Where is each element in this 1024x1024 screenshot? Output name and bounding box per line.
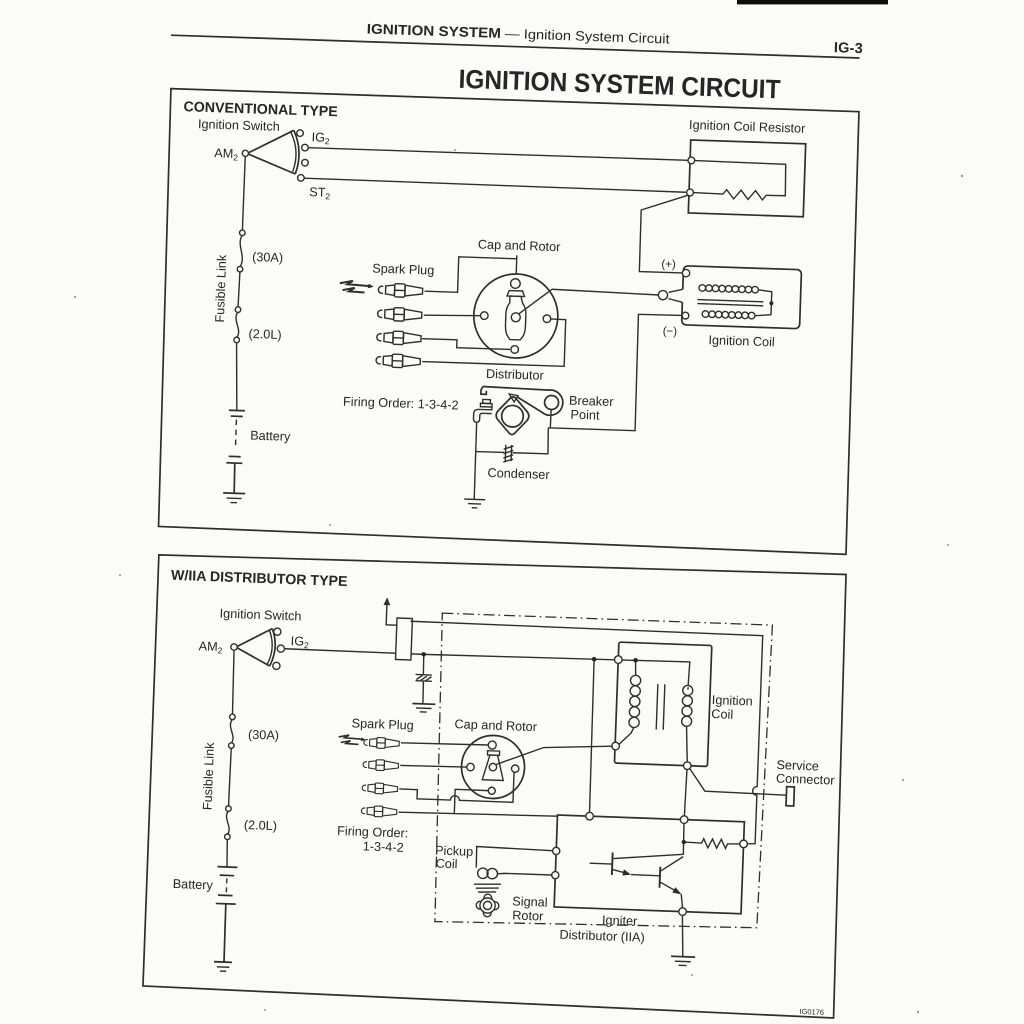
svg-text:Ignition Switch: Ignition Switch [198, 117, 280, 134]
svg-text:Igniter: Igniter [602, 913, 639, 928]
svg-text:Breaker: Breaker [569, 394, 615, 409]
svg-text:Ignition: Ignition [712, 693, 753, 708]
svg-text:(30A): (30A) [248, 728, 280, 743]
svg-text:Coil: Coil [435, 857, 457, 872]
svg-text:Point: Point [570, 408, 600, 423]
svg-text:Fusible Link: Fusible Link [213, 254, 229, 323]
svg-text:1-3-4-2: 1-3-4-2 [363, 839, 404, 854]
svg-text:Battery: Battery [172, 877, 213, 892]
svg-text:Rotor: Rotor [512, 908, 544, 923]
svg-text:Connector: Connector [776, 771, 836, 787]
svg-text:Spark Plug: Spark Plug [372, 261, 434, 277]
svg-text:Cap and Rotor: Cap and Rotor [478, 237, 562, 254]
svg-text:Firing Order:: Firing Order: [337, 824, 409, 841]
svg-text:IG0176: IG0176 [799, 1007, 824, 1017]
svg-text:(2.0L): (2.0L) [244, 818, 278, 833]
svg-text:Battery: Battery [250, 429, 291, 444]
svg-text:(30A): (30A) [252, 250, 283, 265]
svg-text:IG-3: IG-3 [834, 40, 864, 57]
svg-text:Condenser: Condenser [487, 466, 550, 482]
svg-text:Signal: Signal [512, 894, 548, 909]
svg-text:Distributor: Distributor [486, 367, 545, 383]
svg-text:(−): (−) [662, 326, 677, 338]
svg-text:Coil: Coil [711, 707, 733, 722]
svg-text:Fusible Link: Fusible Link [200, 742, 216, 811]
svg-text:Ignition Switch: Ignition Switch [219, 606, 301, 623]
svg-text:Spark Plug: Spark Plug [351, 716, 414, 732]
svg-text:Ignition Coil: Ignition Coil [708, 333, 775, 349]
svg-text:(2.0L): (2.0L) [248, 327, 282, 342]
svg-text:(+): (+) [661, 259, 676, 271]
